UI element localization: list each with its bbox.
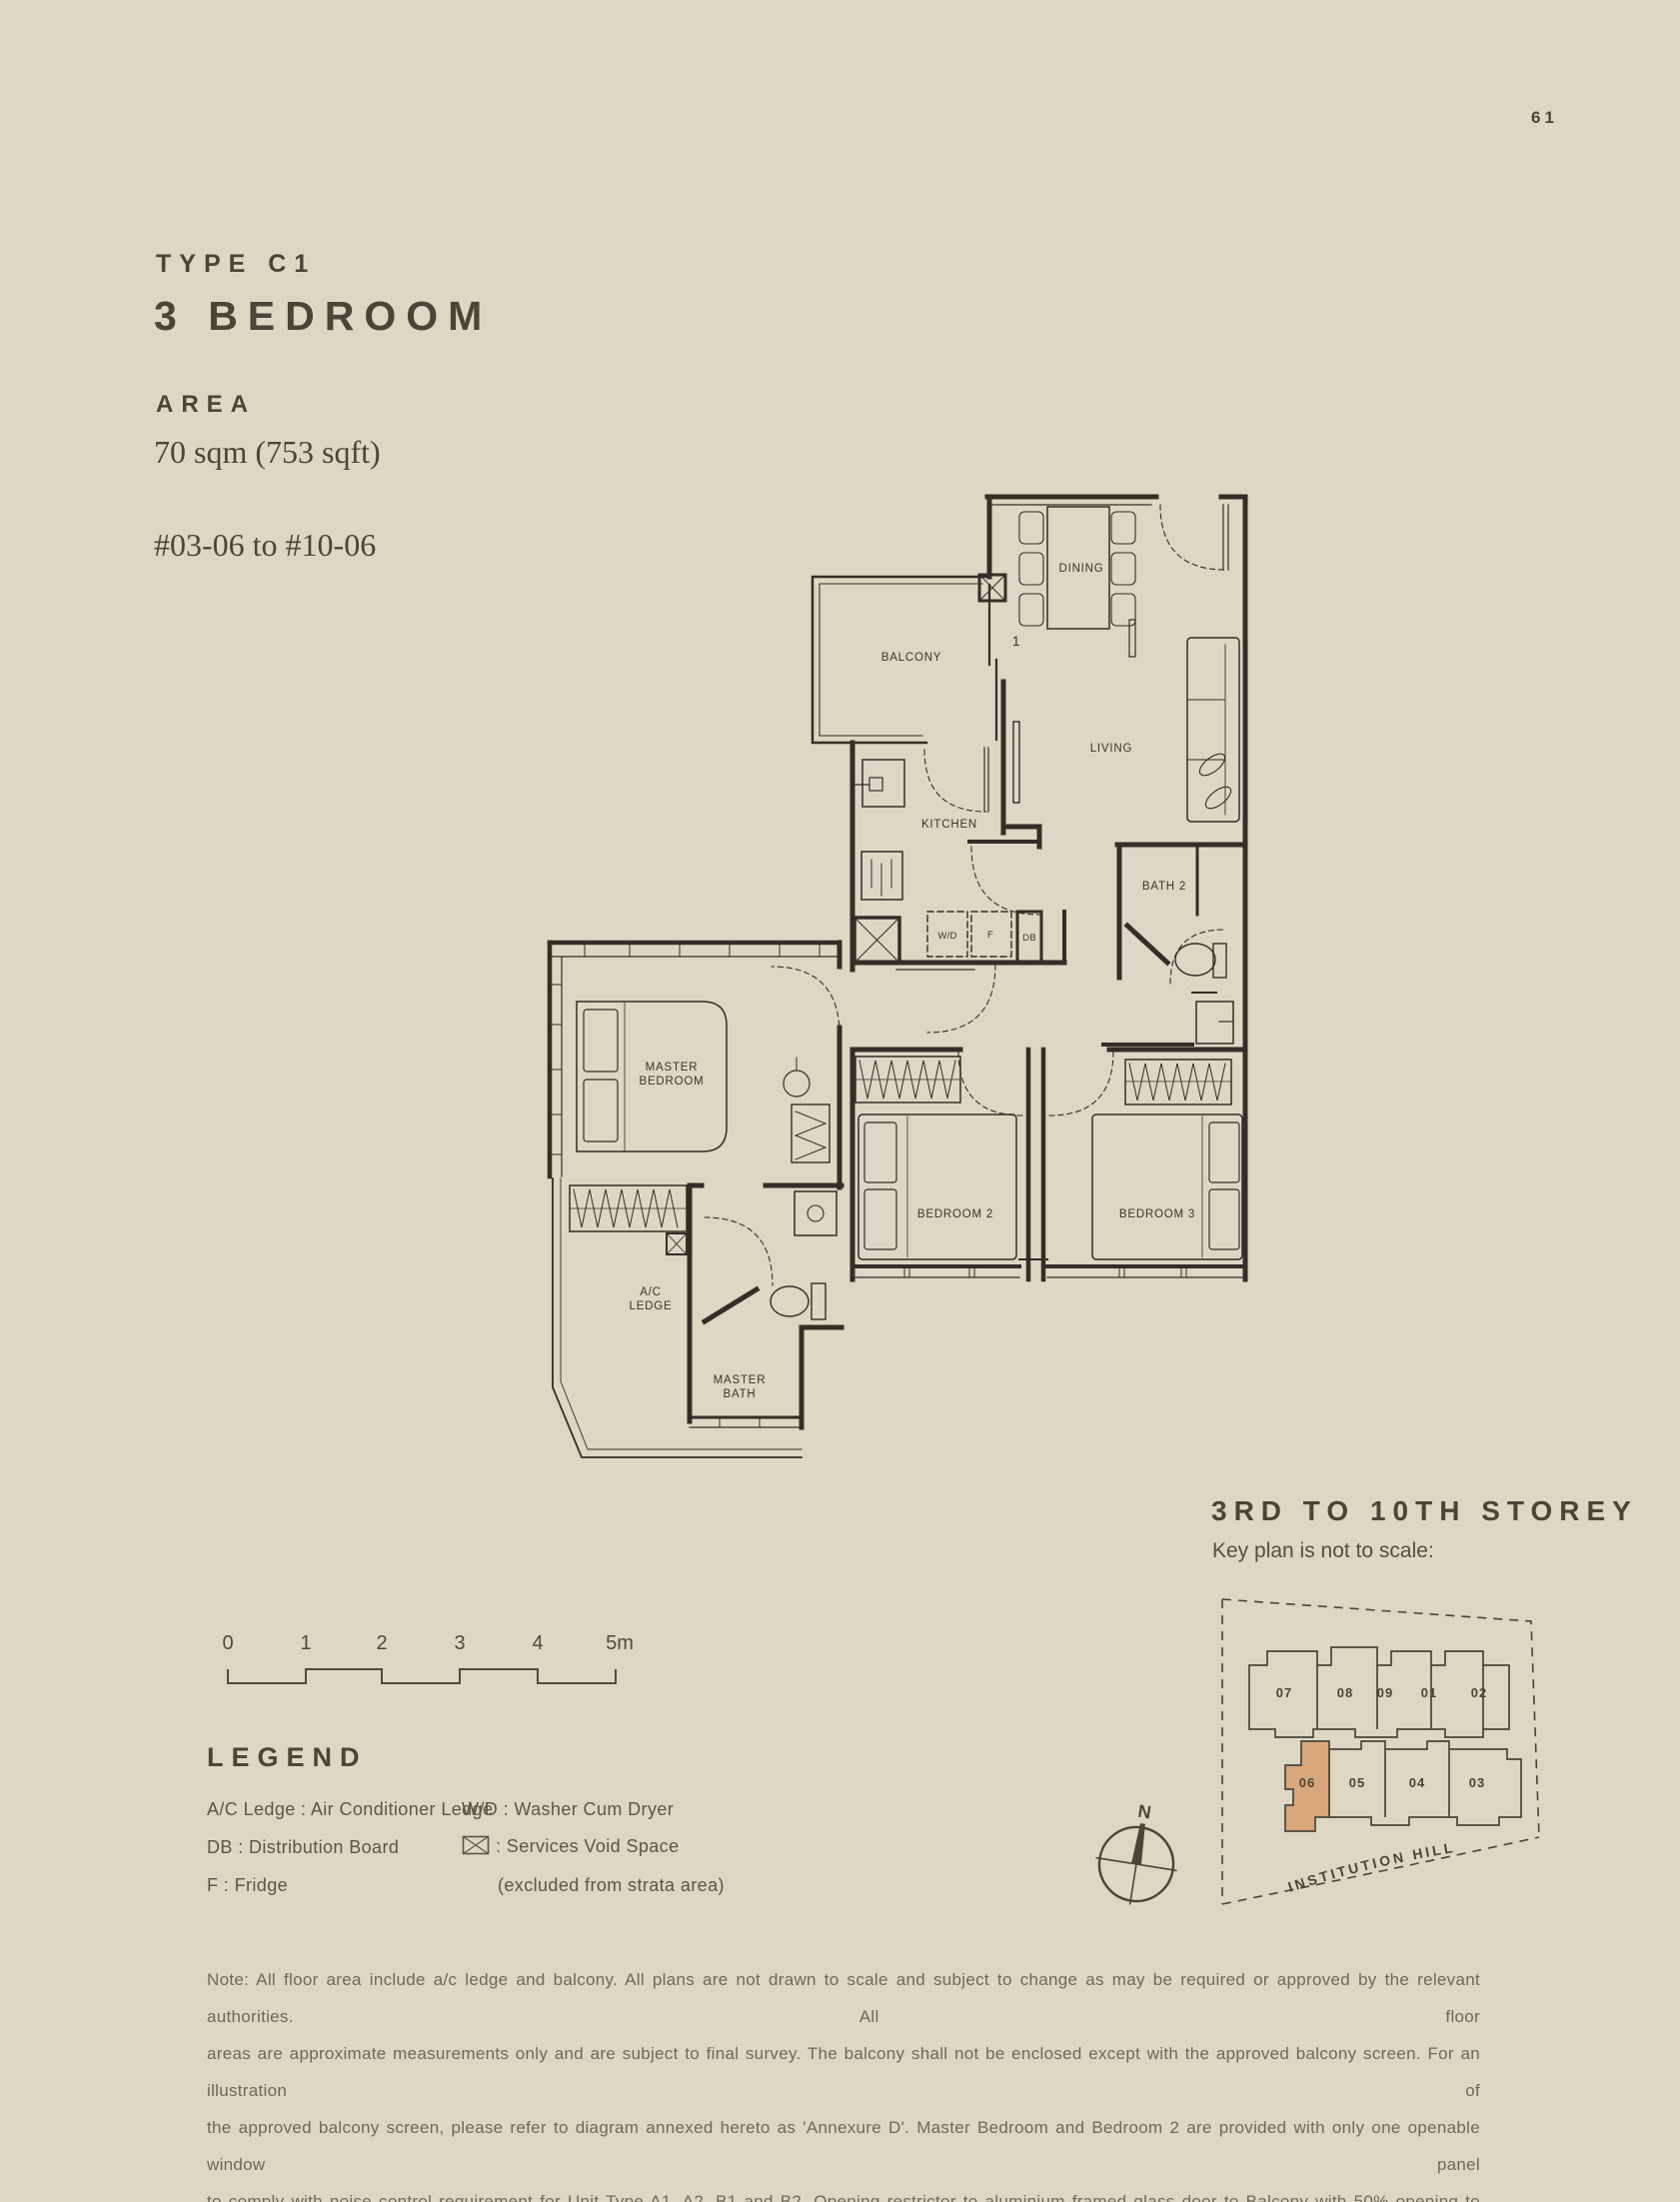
keyplan-title: 3RD TO 10TH STOREY	[1211, 1495, 1638, 1527]
keyplan-subtitle: Key plan is not to scale:	[1212, 1539, 1434, 1563]
compass-north-label: N	[1136, 1801, 1152, 1823]
key-plan: 07 08 09 01 02 06 05 04 03 INSTITUTION H…	[1079, 1579, 1569, 1939]
keyplan-unit-04: 04	[1409, 1775, 1425, 1790]
legend-item-void-label: : Services Void Space	[496, 1836, 680, 1856]
legend-item-void-note: (excluded from strata area)	[498, 1875, 725, 1896]
note-line-4: to comply with noise control requirement…	[207, 2183, 1480, 2202]
keyplan-unit-06: 06	[1299, 1775, 1315, 1790]
unit-range: #03-06 to #10-06	[154, 527, 376, 564]
scale-tick-4: 4	[532, 1632, 543, 1654]
legend-item-db: DB : Distribution Board	[207, 1837, 399, 1858]
room-label-masterbath-line1: MASTER	[714, 1374, 767, 1386]
scale-bar-line	[228, 1669, 616, 1683]
scale-tick-3: 3	[454, 1632, 465, 1654]
legend-item-acledge: A/C Ledge : Air Conditioner Ledge	[207, 1799, 493, 1820]
legend-title: LEGEND	[207, 1742, 368, 1773]
legend-item-wd: W/D : Washer Cum Dryer	[462, 1799, 674, 1820]
note-line-3: the approved balcony screen, please refe…	[207, 2109, 1480, 2183]
services-void-icon	[462, 1835, 490, 1860]
area-heading: AREA	[156, 391, 256, 419]
unit-type-code: TYPE C1	[156, 250, 316, 279]
page-title: 3 BEDROOM	[154, 293, 492, 340]
scale-tick-5m: 5m	[606, 1632, 634, 1654]
north-compass-icon: N	[1089, 1795, 1186, 1911]
room-label-kitchen: KITCHEN	[921, 819, 977, 831]
road-line	[1222, 1837, 1539, 1904]
street-name-text: INSTITUTION HILL	[1286, 1839, 1457, 1895]
room-label-master-line1: MASTER	[646, 1062, 699, 1074]
room-label-dining: DINING	[1058, 563, 1103, 575]
page-number: 61	[1531, 108, 1558, 128]
room-label-acledge-line1: A/C	[640, 1286, 662, 1298]
room-label-acledge-line2: LEDGE	[630, 1300, 673, 1312]
note-line-1: Note: All floor area include a/c ledge a…	[207, 1961, 1480, 2035]
keyplan-unit-07: 07	[1276, 1685, 1292, 1700]
label-distribution-board: DB	[1022, 933, 1036, 944]
scale-tick-2: 2	[376, 1632, 387, 1654]
street-name: INSTITUTION HILL	[1286, 1839, 1457, 1895]
keyplan-unit-05: 05	[1349, 1775, 1365, 1790]
brochure-page: 61 TYPE C1 3 BEDROOM AREA 70 sqm (753 sq…	[0, 0, 1680, 2202]
legend-item-void: : Services Void Space	[462, 1835, 680, 1860]
scale-tick-0: 0	[222, 1632, 233, 1654]
label-fridge: F	[987, 930, 993, 941]
scale-tick-1: 1	[300, 1632, 311, 1654]
keyplan-boundary	[1222, 1599, 1539, 1837]
label-washer-dryer: W/D	[937, 931, 956, 942]
keyplan-unit-01: 01	[1421, 1685, 1437, 1700]
room-label-bedroom3: BEDROOM 3	[1119, 1208, 1195, 1220]
keyplan-unit-08: 08	[1337, 1685, 1353, 1700]
scale-bar: 0 1 2 3 4 5m	[220, 1631, 650, 1695]
keyplan-unit-03: 03	[1469, 1775, 1485, 1790]
keyplan-unit-09: 09	[1377, 1685, 1393, 1700]
plan-mark-1: 1	[1012, 633, 1021, 649]
legend-item-fridge: F : Fridge	[207, 1875, 288, 1896]
room-label-bath2: BATH 2	[1142, 881, 1186, 893]
keyplan-unit-02: 02	[1471, 1685, 1487, 1700]
room-label-living: LIVING	[1090, 743, 1133, 755]
room-label-masterbath-line2: BATH	[723, 1388, 756, 1400]
room-label-balcony: BALCONY	[881, 652, 942, 664]
area-value: 70 sqm (753 sqft)	[154, 434, 381, 471]
floor-plan: DINING BALCONY LIVING KITCHEN BATH 2 W/D…	[520, 460, 1279, 1469]
room-label-bedroom2: BEDROOM 2	[917, 1208, 993, 1220]
room-label-master-line2: BEDROOM	[639, 1076, 704, 1088]
note-line-2: areas are approximate measurements only …	[207, 2035, 1480, 2109]
disclaimer-note: Note: All floor area include a/c ledge a…	[207, 1961, 1480, 2202]
